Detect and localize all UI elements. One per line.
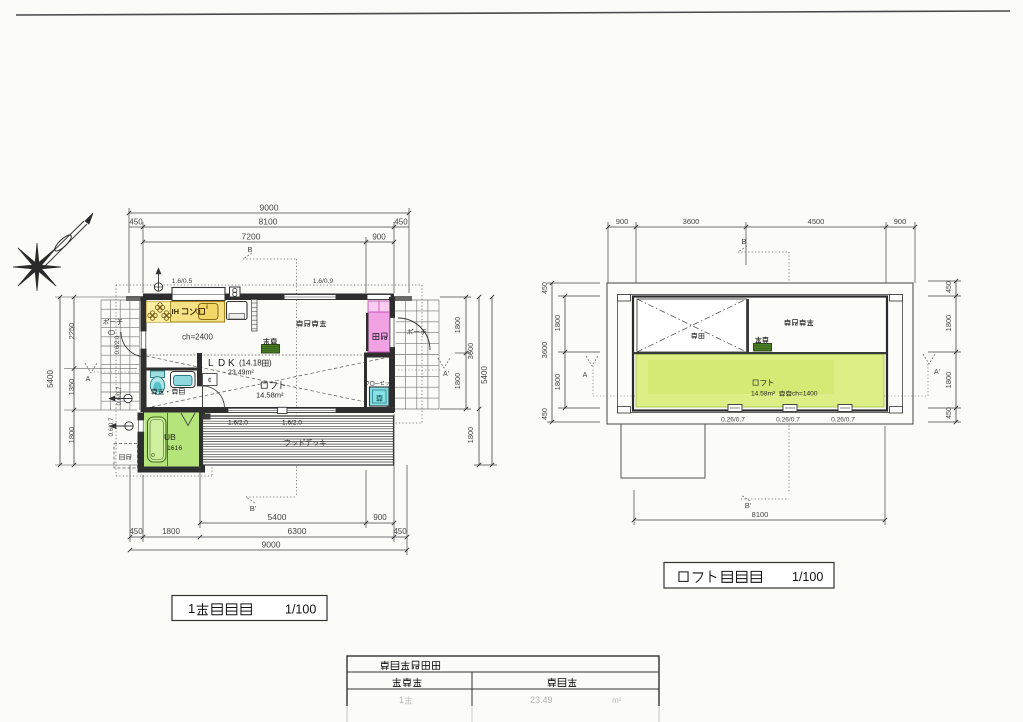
svg-text:0.6/0.7: 0.6/0.7 — [108, 417, 115, 436]
svg-text:5400: 5400 — [46, 370, 55, 388]
svg-text:A: A — [583, 372, 588, 379]
svg-text:K: K — [228, 358, 235, 369]
svg-text:0.6/0.7: 0.6/0.7 — [116, 386, 123, 405]
svg-text:450: 450 — [542, 408, 549, 420]
svg-text:0.6/2.0: 0.6/2.0 — [114, 335, 121, 354]
svg-text:3600: 3600 — [683, 217, 700, 226]
svg-text:0.26/0.7: 0.26/0.7 — [721, 417, 745, 424]
svg-text:¢: ¢ — [208, 378, 212, 385]
svg-text:450: 450 — [946, 407, 953, 419]
svg-text:B': B' — [250, 504, 257, 513]
svg-text:1.6/2.0: 1.6/2.0 — [228, 420, 248, 427]
svg-text:IH: IH — [172, 307, 180, 316]
svg-text:450: 450 — [129, 218, 143, 227]
svg-text:450: 450 — [946, 281, 953, 293]
svg-text:900: 900 — [372, 233, 386, 242]
svg-text:A': A' — [443, 371, 449, 378]
svg-text:9000: 9000 — [260, 203, 279, 213]
svg-text:ch=2400: ch=2400 — [182, 333, 213, 342]
svg-text:ch=1400: ch=1400 — [792, 391, 818, 398]
svg-text:900: 900 — [894, 217, 907, 226]
svg-text:1: 1 — [399, 695, 404, 705]
svg-text:23.49: 23.49 — [530, 695, 553, 705]
svg-text:B: B — [247, 245, 252, 254]
svg-text:1800: 1800 — [944, 372, 953, 389]
svg-text:1800: 1800 — [453, 373, 462, 390]
svg-text:1350: 1350 — [67, 379, 76, 396]
svg-text:1616: 1616 — [167, 445, 182, 452]
svg-text:1800: 1800 — [466, 427, 475, 444]
svg-text:0.26/0.7: 0.26/0.7 — [831, 417, 855, 424]
svg-text:1800: 1800 — [553, 315, 562, 332]
svg-text:A: A — [86, 376, 91, 383]
svg-text:8100: 8100 — [752, 510, 769, 519]
svg-text:1.6/0.9: 1.6/0.9 — [313, 278, 334, 285]
svg-text:5400: 5400 — [480, 366, 489, 384]
svg-text:1800: 1800 — [162, 527, 180, 536]
svg-text:L: L — [208, 358, 214, 369]
svg-text:0.26/0.7: 0.26/0.7 — [776, 417, 800, 424]
svg-text:14.58m²: 14.58m² — [751, 391, 776, 398]
svg-text:B': B' — [745, 501, 752, 510]
svg-text:1800: 1800 — [944, 315, 953, 332]
svg-text:1800: 1800 — [453, 317, 462, 334]
svg-text:450: 450 — [393, 527, 407, 536]
svg-text:1: 1 — [188, 601, 195, 616]
svg-text:1/100: 1/100 — [285, 603, 316, 617]
svg-text:3600: 3600 — [466, 343, 475, 360]
svg-text:3600: 3600 — [540, 342, 549, 359]
svg-text:900: 900 — [616, 217, 629, 226]
svg-text:UB: UB — [164, 432, 176, 442]
svg-text:14.58m²: 14.58m² — [256, 391, 284, 400]
svg-text:450: 450 — [129, 527, 143, 536]
svg-text:4500: 4500 — [808, 217, 825, 226]
svg-text:450: 450 — [542, 282, 549, 294]
svg-text:7200: 7200 — [242, 232, 261, 242]
svg-text:A': A' — [934, 369, 940, 376]
svg-text:D: D — [218, 358, 225, 369]
svg-text:8100: 8100 — [259, 217, 278, 227]
svg-text:6300: 6300 — [288, 526, 307, 536]
svg-text:1.6/2.0: 1.6/2.0 — [282, 420, 302, 427]
svg-text:(14.18: (14.18 — [239, 359, 262, 368]
svg-text:1.6/0.5: 1.6/0.5 — [172, 278, 193, 285]
svg-text:2250: 2250 — [67, 323, 76, 340]
svg-text:900: 900 — [373, 513, 387, 522]
svg-text:m²: m² — [612, 696, 622, 705]
svg-text:5400: 5400 — [268, 512, 287, 522]
svg-text:9000: 9000 — [262, 540, 281, 550]
svg-text:B: B — [741, 237, 746, 246]
svg-text:): ) — [269, 359, 272, 368]
svg-text:1/100: 1/100 — [792, 570, 823, 584]
svg-text:1800: 1800 — [67, 427, 76, 444]
svg-text:1800: 1800 — [553, 374, 562, 391]
svg-text:23.49m²: 23.49m² — [228, 370, 254, 377]
